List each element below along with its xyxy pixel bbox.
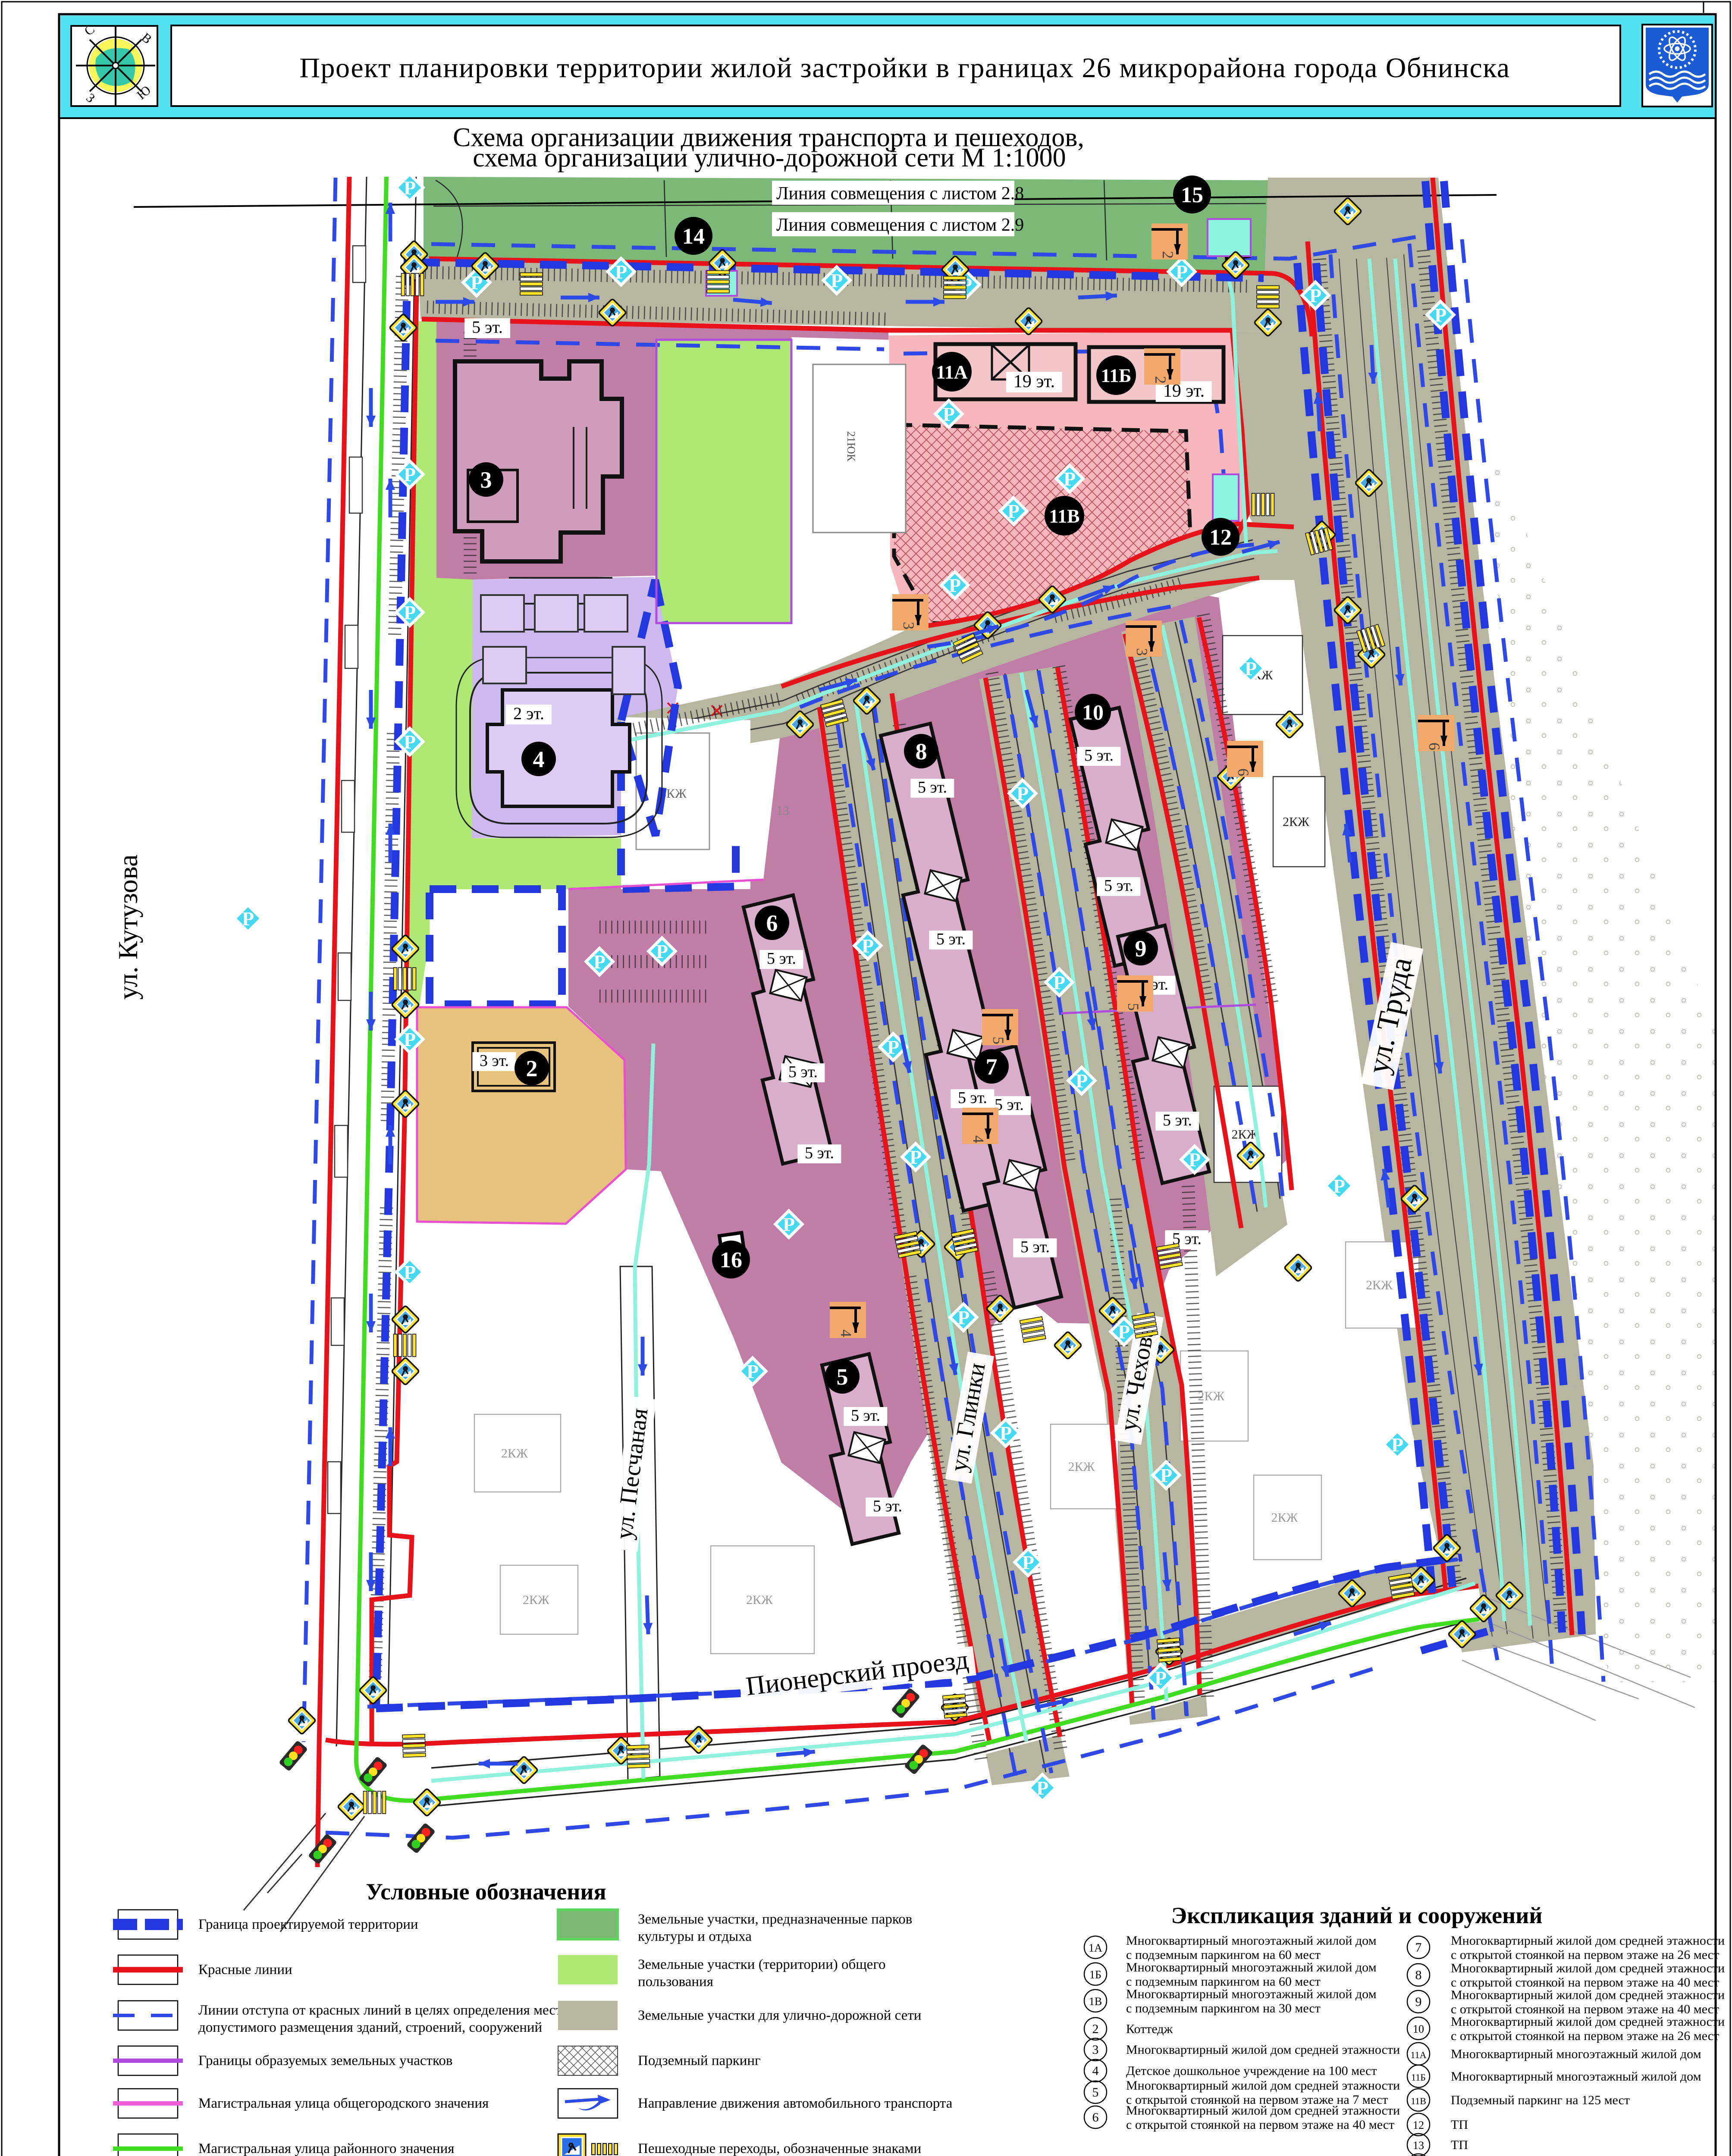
svg-text:2КЖ: 2КЖ [1271,1510,1298,1525]
svg-text:P: P [949,574,961,596]
svg-text:13: 13 [1413,2139,1424,2152]
svg-text:Многоквартирный жилой дом сре: Многоквартирный жилой дом средней этажно… [1451,2015,1725,2029]
svg-text:P: P [831,269,843,291]
svg-text:P: P [1155,1667,1167,1689]
svg-text:2: 2 [1152,376,1169,384]
svg-text:Многоквартирный многоэтажный ж: Многоквартирный многоэтажный жилой дом [1126,1960,1377,1974]
svg-text:культуры и отдыха: культуры и отдыха [638,1929,752,1944]
svg-text:5 эт.: 5 эт. [1104,877,1133,895]
svg-text:4: 4 [838,1329,855,1337]
svg-text:с подземным паркингом на 30 ме: с подземным паркингом на 30 мест [1126,2001,1321,2015]
svg-text:19 эт.: 19 эт. [1013,372,1055,392]
svg-text:2КЖ: 2КЖ [1068,1460,1095,1474]
svg-text:6: 6 [766,910,778,936]
svg-text:3 эт.: 3 эт. [480,1052,509,1070]
svg-text:13: 13 [776,804,789,818]
svg-text:P: P [1000,1422,1012,1444]
svg-text:2: 2 [526,1056,538,1081]
svg-text:Граница проектируемой территор: Граница проектируемой территории [198,1917,418,1932]
svg-text:5 эт.: 5 эт. [472,317,503,337]
svg-text:2КЖ: 2КЖ [1283,815,1309,829]
svg-text:Проект планировки территории ж: Проект планировки территории жилой застр… [299,52,1510,84]
svg-text:9: 9 [1415,1995,1422,2009]
svg-text:Многоквартирный жилой дом сре: Многоквартирный жилой дом средней этажно… [1126,2043,1400,2057]
svg-text:5: 5 [990,1037,1007,1044]
svg-text:с открытой стоянкой на первом: с открытой стоянкой на первом этаже на 4… [1126,2118,1394,2132]
svg-text:5 эт.: 5 эт. [805,1144,834,1162]
svg-text:P: P [1036,1777,1048,1799]
svg-text:5 эт.: 5 эт. [918,778,947,796]
svg-text:Границы образуемых земельных у: Границы образуемых земельных участков [198,2053,452,2068]
svg-text:5 эт.: 5 эт. [788,1063,818,1081]
svg-text:5 эт.: 5 эт. [1020,1238,1050,1256]
svg-text:Магистральная улица общегородс: Магистральная улица общегородского значе… [198,2096,489,2111]
svg-text:11Б: 11Б [1101,365,1132,386]
svg-text:2: 2 [1159,251,1177,259]
svg-text:11А: 11А [1410,2049,1426,2060]
svg-text:15: 15 [1181,183,1203,207]
svg-text:10: 10 [1082,700,1104,724]
svg-text:7: 7 [986,1054,998,1080]
svg-text:P: P [1245,658,1257,680]
svg-text:Многоквартирный многоэтажный ж: Многоквартирный многоэтажный жилой дом [1451,2047,1701,2061]
svg-text:P: P [1333,1175,1345,1197]
svg-text:14: 14 [682,224,705,249]
svg-text:2КЖ: 2КЖ [501,1446,528,1460]
svg-text:5 эт.: 5 эт. [1084,746,1114,765]
svg-text:8: 8 [1415,1968,1422,1982]
svg-text:11В: 11В [1049,505,1080,526]
svg-text:Линия совмещения с листом 2.8: Линия совмещения с листом 2.8 [776,184,1024,204]
svg-text:P: P [593,951,606,973]
svg-text:9: 9 [1135,936,1147,962]
svg-text:P: P [910,1146,922,1168]
svg-text:P: P [957,1307,970,1329]
svg-text:2КЖ: 2КЖ [1366,1278,1393,1292]
svg-text:5 эт.: 5 эт. [995,1096,1024,1114]
svg-text:P: P [747,1360,759,1382]
svg-text:пользования: пользования [638,1974,713,1990]
svg-text:1А: 1А [1089,1942,1102,1954]
svg-text:Коттедж: Коттедж [1126,2022,1173,2036]
svg-text:допустимого размещения зданий,: допустимого размещения зданий, строений,… [198,2020,542,2035]
svg-text:5 эт.: 5 эт. [851,1407,880,1425]
svg-text:Пешеходные переходы, обозначен: Пешеходные переходы, обозначенные знакам… [638,2141,921,2156]
svg-text:5: 5 [837,1364,848,1390]
svg-text:Детское дошкольное учреждение: Детское дошкольное учреждение на 100 мес… [1126,2064,1377,2078]
svg-text:12: 12 [1209,525,1232,550]
svg-text:2КЖ: 2КЖ [523,1593,549,1607]
svg-text:P: P [943,403,955,425]
svg-text:11Б: 11Б [1411,2072,1426,2083]
svg-text:7: 7 [1415,1940,1422,1955]
svg-text:11В: 11В [1411,2096,1426,2106]
svg-text:5: 5 [1092,2085,1099,2100]
svg-text:10: 10 [1413,2023,1424,2035]
svg-text:5: 5 [1125,1003,1142,1011]
svg-text:21ЮК: 21ЮК [845,431,857,462]
svg-text:P: P [1391,1434,1403,1456]
svg-text:Магистральная улица районного: Магистральная улица районного значения [198,2141,454,2156]
svg-text:12: 12 [1413,2119,1424,2131]
svg-text:Красные линии: Красные линии [198,1962,292,1977]
svg-text:P: P [404,1261,416,1283]
svg-text:Направление движения автомобил: Направление движения автомобильного тран… [638,2096,953,2111]
svg-text:P: P [1434,304,1446,326]
svg-text:2: 2 [1092,2022,1099,2036]
svg-text:Земельные участки, предназначе: Земельные участки, предназначенные парко… [638,1912,912,1927]
svg-text:P: P [404,731,416,753]
svg-text:3: 3 [900,622,917,630]
svg-text:с открытой стоянкой на первом: с открытой стоянкой на первом этаже на 2… [1451,1948,1719,1962]
svg-text:3: 3 [1133,648,1151,656]
svg-text:Экспликация зданий и сооружени: Экспликация зданий и сооружений [1171,1902,1543,1928]
svg-text:5 эт.: 5 эт. [936,930,966,948]
svg-text:2КЖ: 2КЖ [746,1593,773,1607]
svg-text:с открытой стоянкой на первом: с открытой стоянкой на первом этаже на 2… [1451,2029,1719,2043]
svg-text:P: P [862,935,874,957]
svg-text:Многоквартирный жилой дом сре: Многоквартирный жилой дом средней этажно… [1451,1934,1725,1948]
svg-text:8: 8 [916,739,927,765]
svg-text:5 эт.: 5 эт. [958,1089,987,1107]
svg-text:4: 4 [1092,2064,1099,2078]
svg-text:Многоквартирный жилой дом сре: Многоквартирный жилой дом средней этажно… [1126,2078,1400,2093]
svg-text:5 эт.: 5 эт. [873,1497,902,1515]
svg-text:P: P [404,177,416,199]
svg-text:Многоквартирный многоэтажный ж: Многоквартирный многоэтажный жилой дом [1126,1934,1377,1948]
svg-text:P: P [404,1028,416,1050]
svg-text:P: P [242,908,254,930]
svg-text:Подземный паркинг на 125 мест: Подземный паркинг на 125 мест [1451,2093,1630,2107]
svg-text:5 эт.: 5 эт. [767,950,796,968]
svg-text:ул. Кутузова: ул. Кутузова [113,855,143,1000]
svg-text:6: 6 [1092,2110,1099,2125]
svg-text:P: P [1017,783,1029,805]
svg-text:P: P [1076,1070,1088,1092]
svg-text:P: P [1007,500,1020,522]
svg-text:P: P [656,940,668,962]
svg-text:P: P [783,1213,795,1235]
svg-text:3: 3 [1092,2043,1099,2057]
svg-text:P: P [1022,1551,1034,1573]
svg-text:Многоквартирный многоэтажный ж: Многоквартирный многоэтажный жилой дом [1451,2069,1701,2084]
svg-text:5 эт.: 5 эт. [1163,1111,1192,1129]
svg-text:4: 4 [533,746,545,772]
svg-text:Многоквартирный жилой дом сре: Многоквартирный жилой дом средней этажно… [1451,1961,1725,1975]
svg-text:Земельные участки (территории): Земельные участки (территории) общего [638,1957,886,1972]
svg-text:4: 4 [970,1135,987,1143]
svg-text:Линия совмещения с листом 2.9: Линия совмещения с листом 2.9 [776,215,1024,235]
svg-text:Многоквартирный многоэтажный ж: Многоквартирный многоэтажный жилой дом [1126,1987,1377,2001]
svg-text:2КЖ: 2КЖ [1232,1128,1258,1142]
svg-text:P: P [1064,468,1076,490]
svg-text:6: 6 [1426,743,1443,750]
svg-text:P: P [615,261,627,283]
svg-text:Линии отступа от красных линий: Линии отступа от красных линий в целях о… [198,2002,562,2018]
svg-text:1В: 1В [1089,1995,1102,2008]
svg-text:6: 6 [1235,768,1252,776]
svg-text:P: P [1189,1149,1201,1171]
svg-text:P: P [1309,285,1321,307]
svg-text:16: 16 [720,1248,742,1272]
svg-text:Многоквартирный жилой дом сре: Многоквартирный жилой дом средней этажно… [1126,2103,1400,2118]
svg-text:P: P [1160,1464,1172,1486]
svg-text:Земельные участки для улично-д: Земельные участки для улично-дорожной се… [638,2008,921,2023]
svg-text:3: 3 [480,467,492,493]
svg-text:P: P [404,464,416,486]
svg-text:P: P [404,602,416,624]
svg-text:P: P [887,1036,899,1058]
svg-text:1Б: 1Б [1089,1968,1101,1981]
svg-text:ТП: ТП [1451,2118,1468,2132]
svg-text:Условные обозначения: Условные обозначения [366,1879,606,1905]
svg-text:P: P [1176,261,1188,283]
svg-text:ТП: ТП [1451,2138,1468,2152]
svg-text:11А: 11А [936,361,968,382]
svg-text:P: P [1053,971,1065,993]
svg-text:схема организации улично-дорож: схема организации улично-дорожной сети М… [473,143,1066,172]
svg-text:2 эт.: 2 эт. [513,704,544,723]
svg-text:Подземный паркинг: Подземный паркинг [638,2053,761,2068]
svg-text:Многоквартирный жилой дом сре: Многоквартирный жилой дом средней этажно… [1451,1988,1725,2002]
svg-text:P: P [1118,1321,1130,1343]
